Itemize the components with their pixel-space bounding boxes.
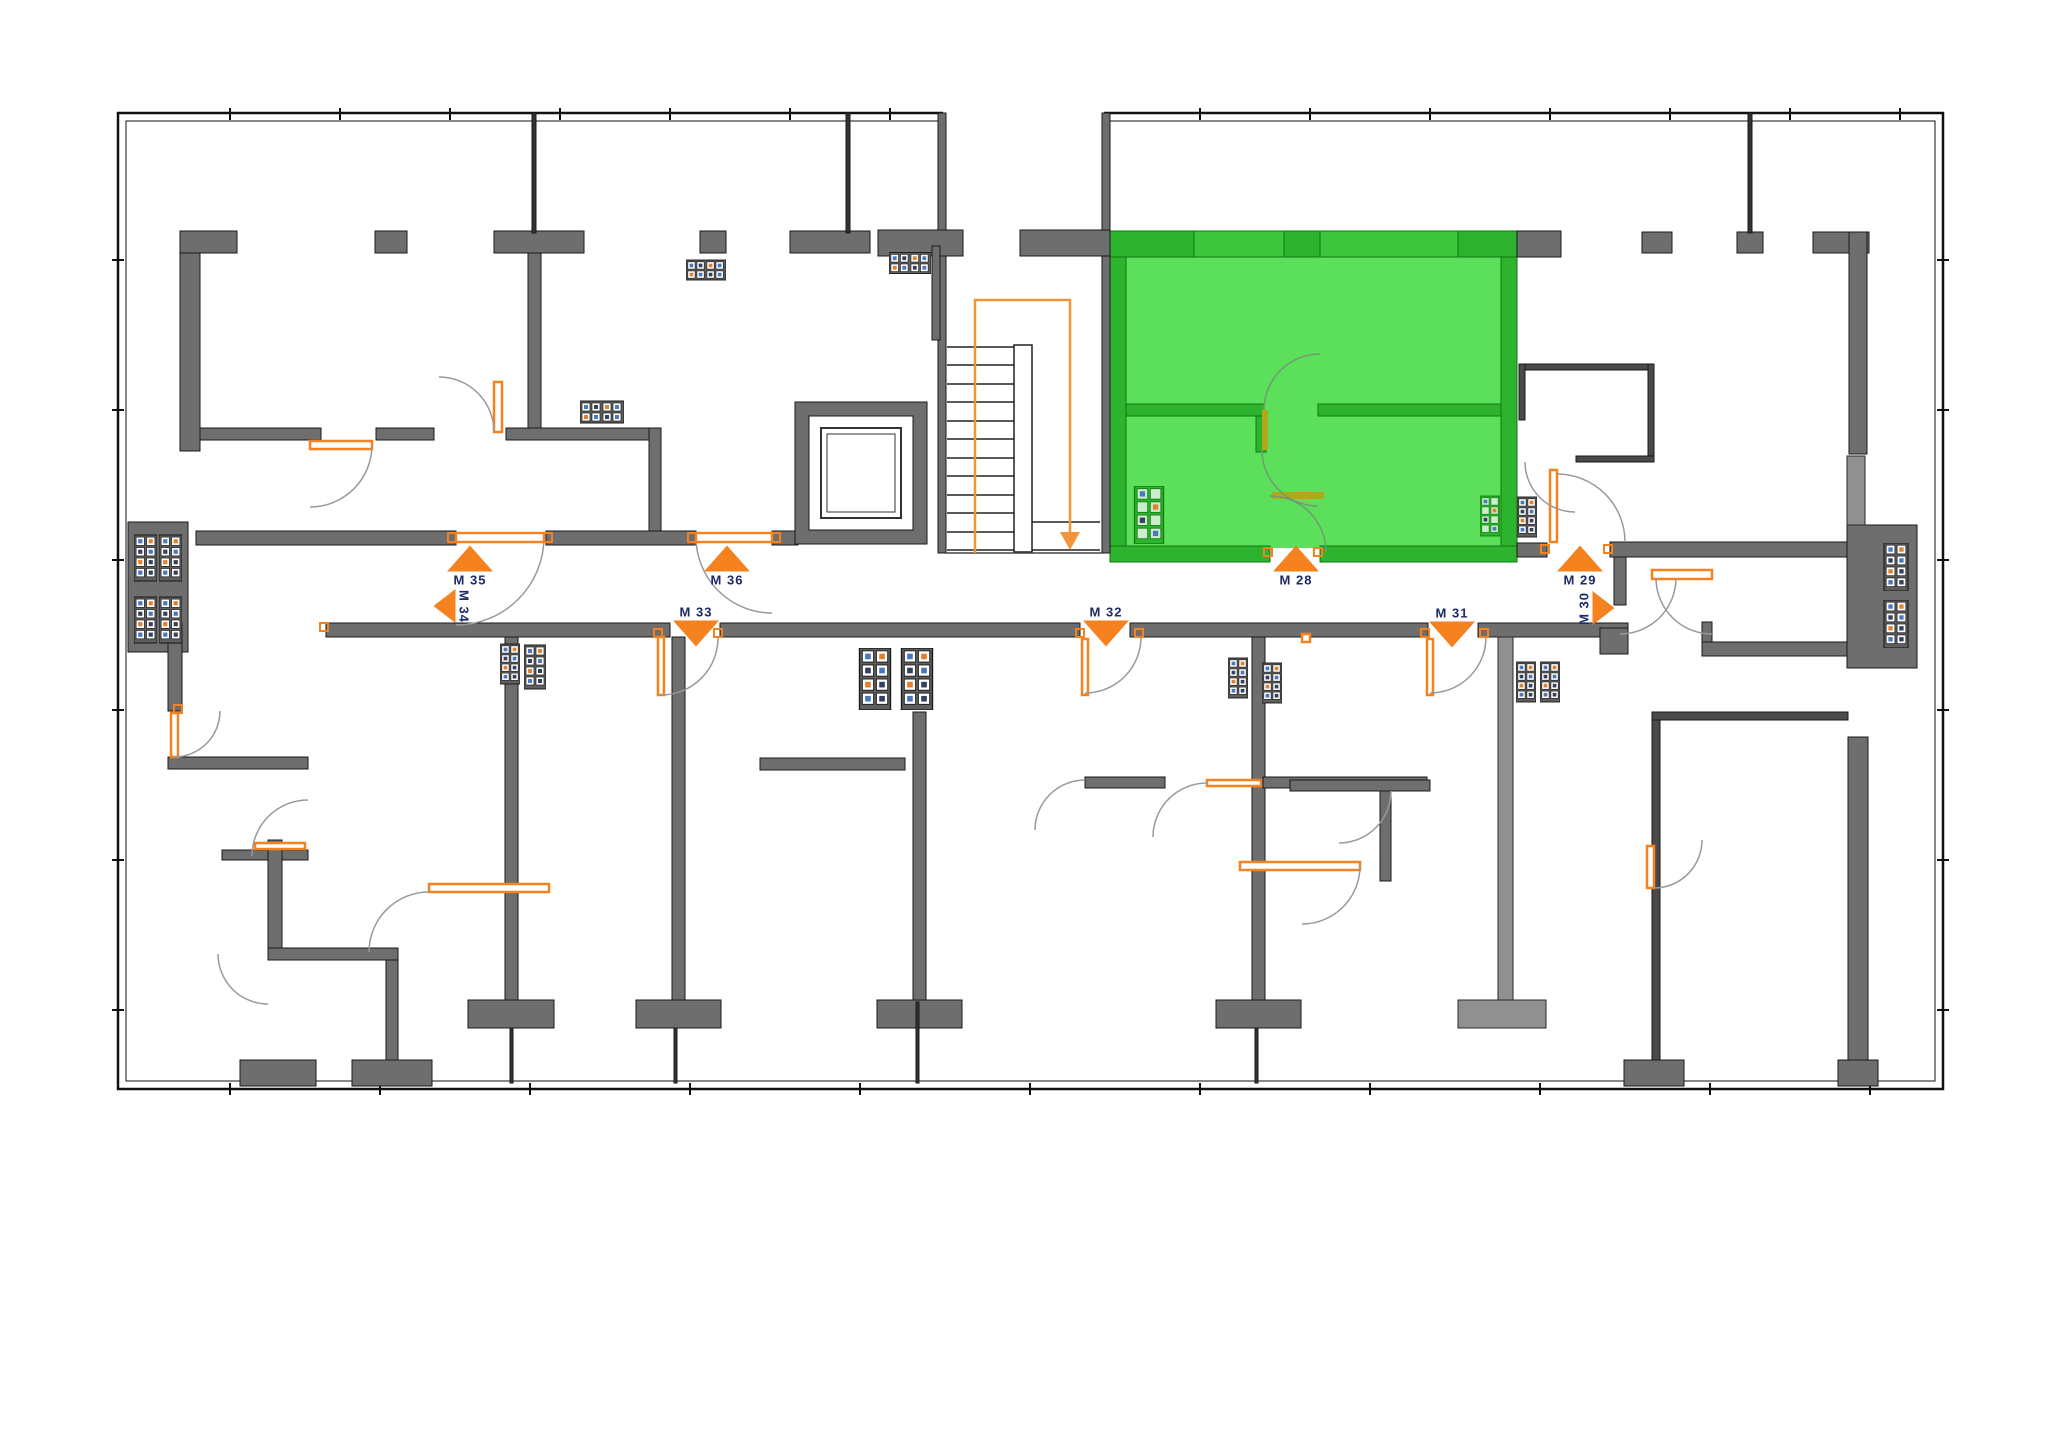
down-arrow-icon	[1083, 621, 1129, 647]
floor-plan-drawing	[0, 0, 2048, 1433]
down-arrow-icon	[673, 621, 719, 647]
apartment-label: M 31	[1436, 607, 1469, 620]
up-arrow-icon	[1557, 546, 1603, 572]
left-arrow-icon	[434, 589, 456, 623]
staircase	[946, 345, 1102, 553]
apartment-label: M 32	[1090, 606, 1123, 619]
apartment-label: M 29	[1564, 574, 1597, 587]
apartment-label: M 30	[1578, 592, 1591, 625]
apartment-label: M 28	[1280, 574, 1313, 587]
apartment-label: M 33	[680, 606, 713, 619]
apartment-marker-m29[interactable]: M 29	[1557, 546, 1603, 587]
apartment-marker-m32[interactable]: M 32	[1083, 606, 1129, 647]
apartment-marker-m36[interactable]: M 36	[704, 546, 750, 587]
apartment-label: M 34	[458, 590, 471, 623]
apartment-marker-m30[interactable]: M 30	[1578, 591, 1615, 625]
apartment-marker-m31[interactable]: M 31	[1429, 607, 1475, 648]
up-arrow-icon	[704, 546, 750, 572]
up-arrow-icon	[447, 546, 493, 572]
apartment-marker-m33[interactable]: M 33	[673, 606, 719, 647]
apartment-marker-m35[interactable]: M 35	[447, 546, 493, 587]
apartment-label: M 36	[711, 574, 744, 587]
floor-plan-page: M 35 M 34 M 36 M 33 M 28 M 32 M 31 M 29 …	[0, 0, 2048, 1433]
right-arrow-icon	[1593, 591, 1615, 625]
apartment-marker-m28[interactable]: M 28	[1273, 546, 1319, 587]
down-arrow-icon	[1429, 622, 1475, 648]
interior-walls	[128, 113, 1917, 1086]
elevator-shaft	[795, 402, 927, 544]
up-arrow-icon	[1273, 546, 1319, 572]
highlighted-apartment-m28[interactable]	[1110, 231, 1517, 562]
apartment-label: M 35	[454, 574, 487, 587]
apartment-marker-m34[interactable]: M 34	[434, 589, 471, 623]
